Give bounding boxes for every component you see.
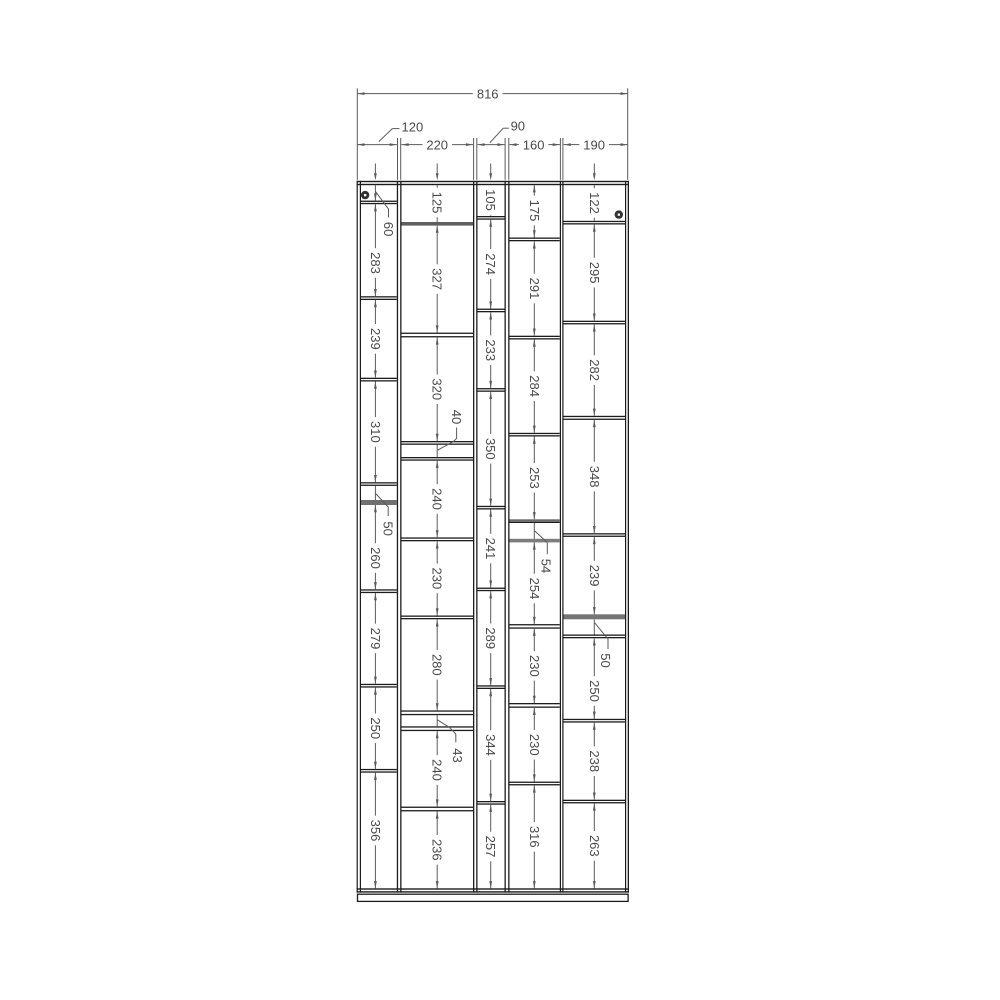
svg-text:239: 239 [368, 328, 383, 350]
svg-text:233: 233 [483, 339, 498, 361]
svg-text:279: 279 [368, 628, 383, 650]
svg-text:236: 236 [430, 839, 445, 861]
svg-text:238: 238 [587, 750, 602, 772]
svg-text:274: 274 [483, 253, 498, 275]
svg-text:253: 253 [527, 467, 542, 489]
svg-text:190: 190 [583, 137, 605, 152]
svg-text:348: 348 [587, 466, 602, 488]
svg-text:310: 310 [368, 421, 383, 443]
svg-text:125: 125 [430, 192, 445, 214]
svg-text:230: 230 [527, 734, 542, 756]
svg-text:284: 284 [527, 375, 542, 397]
svg-text:160: 160 [523, 137, 545, 152]
svg-text:295: 295 [587, 262, 602, 284]
svg-text:327: 327 [430, 268, 445, 290]
svg-text:240: 240 [430, 488, 445, 510]
svg-text:350: 350 [483, 438, 498, 460]
svg-text:289: 289 [483, 627, 498, 649]
svg-text:175: 175 [527, 200, 542, 222]
svg-text:320: 320 [430, 378, 445, 400]
svg-text:816: 816 [477, 86, 499, 101]
svg-text:260: 260 [368, 547, 383, 569]
svg-text:60: 60 [381, 222, 396, 236]
svg-text:280: 280 [430, 654, 445, 676]
svg-text:90: 90 [511, 118, 525, 133]
svg-text:40: 40 [449, 410, 464, 424]
svg-text:220: 220 [426, 137, 448, 152]
svg-text:291: 291 [527, 278, 542, 300]
svg-text:120: 120 [402, 120, 424, 135]
svg-text:239: 239 [587, 565, 602, 587]
svg-text:250: 250 [587, 680, 602, 702]
svg-text:50: 50 [598, 653, 613, 667]
svg-text:282: 282 [587, 359, 602, 381]
svg-text:240: 240 [430, 759, 445, 781]
svg-text:254: 254 [527, 578, 542, 600]
svg-text:283: 283 [368, 252, 383, 274]
svg-text:122: 122 [587, 192, 602, 214]
svg-text:250: 250 [368, 717, 383, 739]
svg-text:316: 316 [527, 826, 542, 848]
svg-text:50: 50 [381, 521, 396, 535]
svg-text:344: 344 [483, 734, 498, 756]
svg-text:230: 230 [430, 568, 445, 590]
svg-text:230: 230 [527, 655, 542, 677]
svg-text:241: 241 [483, 538, 498, 560]
svg-text:257: 257 [483, 836, 498, 858]
svg-text:105: 105 [483, 189, 498, 211]
svg-text:43: 43 [450, 748, 465, 762]
svg-text:54: 54 [539, 559, 554, 573]
svg-text:356: 356 [368, 820, 383, 842]
svg-text:263: 263 [587, 835, 602, 857]
